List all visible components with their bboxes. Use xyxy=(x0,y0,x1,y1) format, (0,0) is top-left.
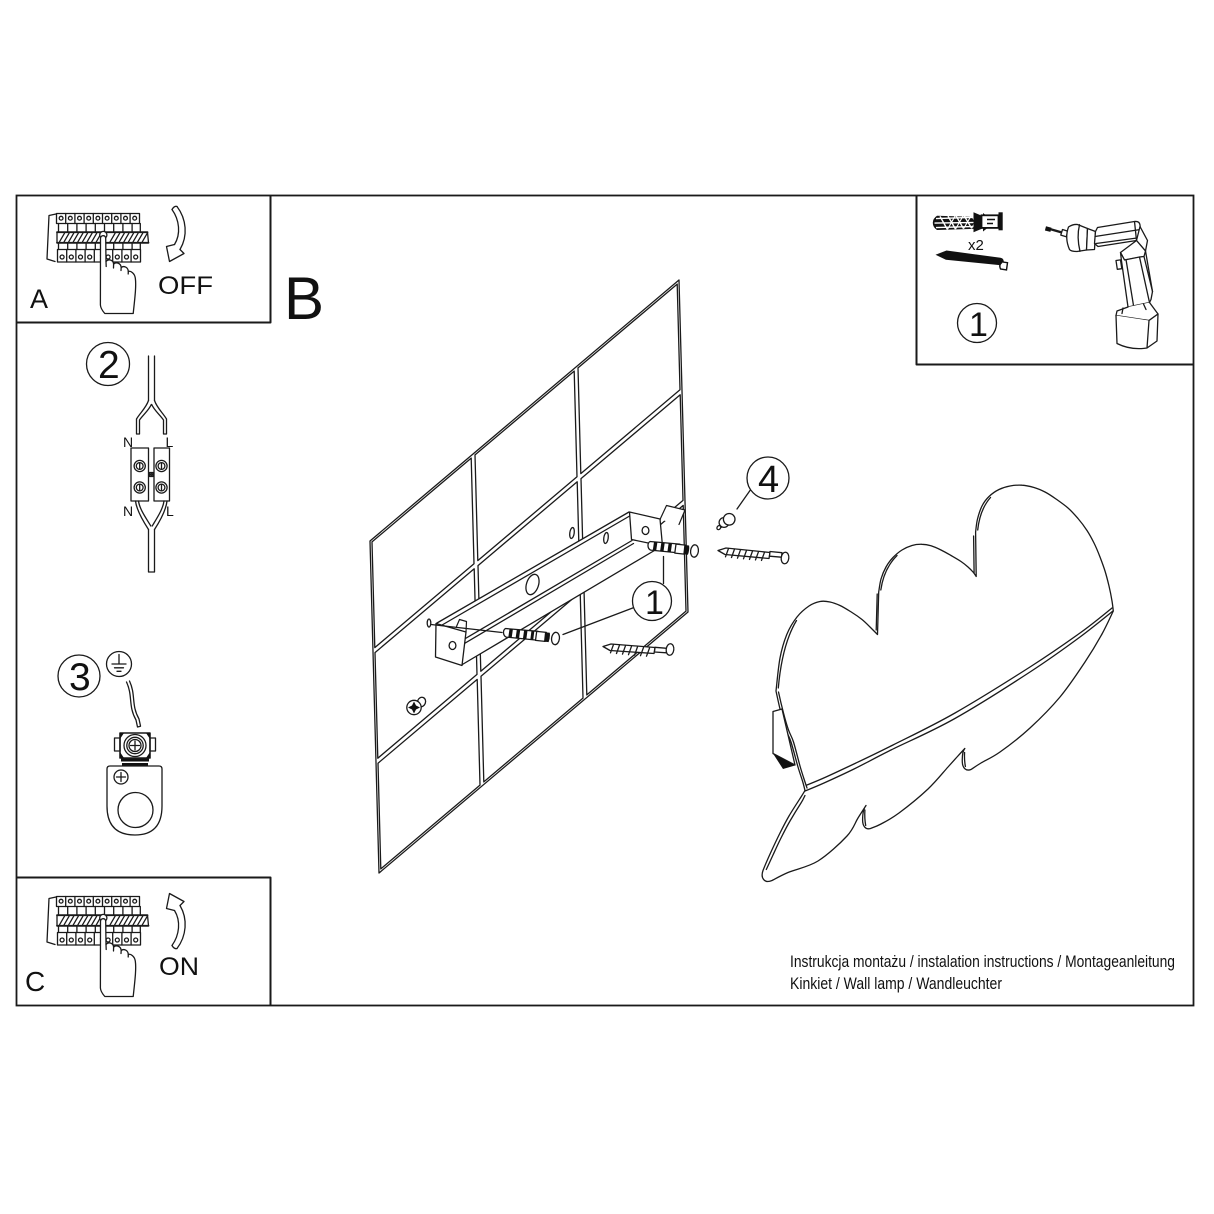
svg-text:Kinkiet / Wall lamp / Wandleuc: Kinkiet / Wall lamp / Wandleuchter xyxy=(790,974,1002,993)
svg-text:A: A xyxy=(30,284,48,314)
svg-text:Instrukcja montażu / instalati: Instrukcja montażu / instalation instruc… xyxy=(790,952,1175,971)
svg-text:B: B xyxy=(284,265,324,332)
svg-text:N: N xyxy=(123,503,133,519)
svg-text:OFF: OFF xyxy=(158,272,213,300)
svg-text:C: C xyxy=(25,966,45,997)
svg-text:2: 2 xyxy=(98,344,120,387)
svg-text:1: 1 xyxy=(969,306,988,344)
svg-text:3: 3 xyxy=(69,656,91,699)
svg-text:ON: ON xyxy=(159,953,199,981)
svg-text:4: 4 xyxy=(758,459,779,501)
svg-text:x2: x2 xyxy=(968,237,984,254)
svg-text:1: 1 xyxy=(645,584,664,622)
svg-text:L: L xyxy=(166,503,174,519)
